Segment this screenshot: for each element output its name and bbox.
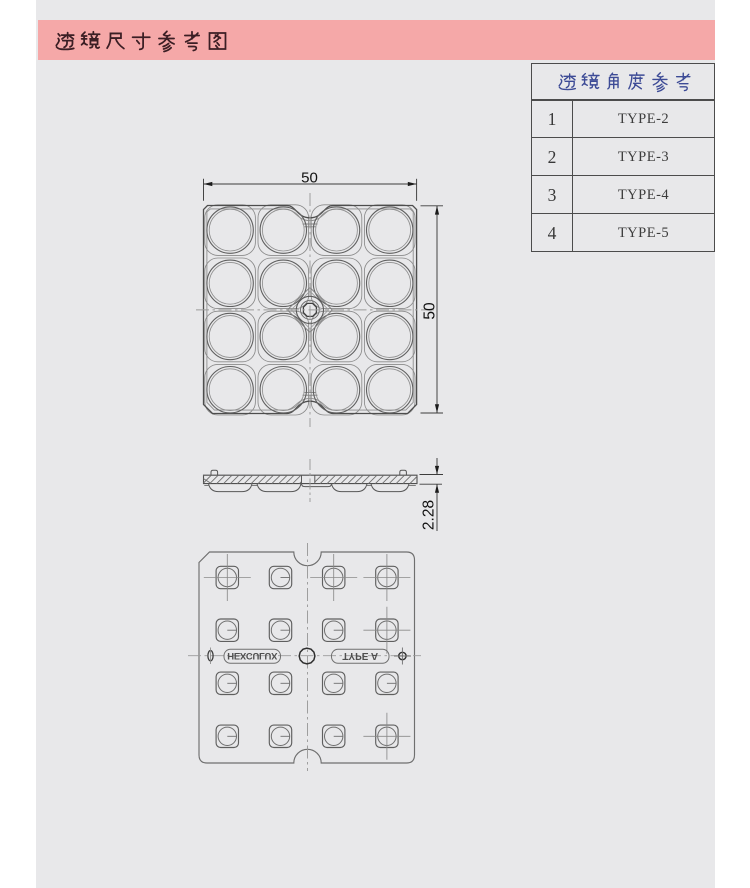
svg-text:50: 50 — [301, 169, 318, 186]
svg-text:50: 50 — [421, 302, 438, 320]
svg-text:2.28: 2.28 — [421, 500, 438, 530]
svg-text:HEXCULUX: HEXCULUX — [227, 650, 278, 661]
svg-text:TYPE A: TYPE A — [342, 650, 378, 661]
